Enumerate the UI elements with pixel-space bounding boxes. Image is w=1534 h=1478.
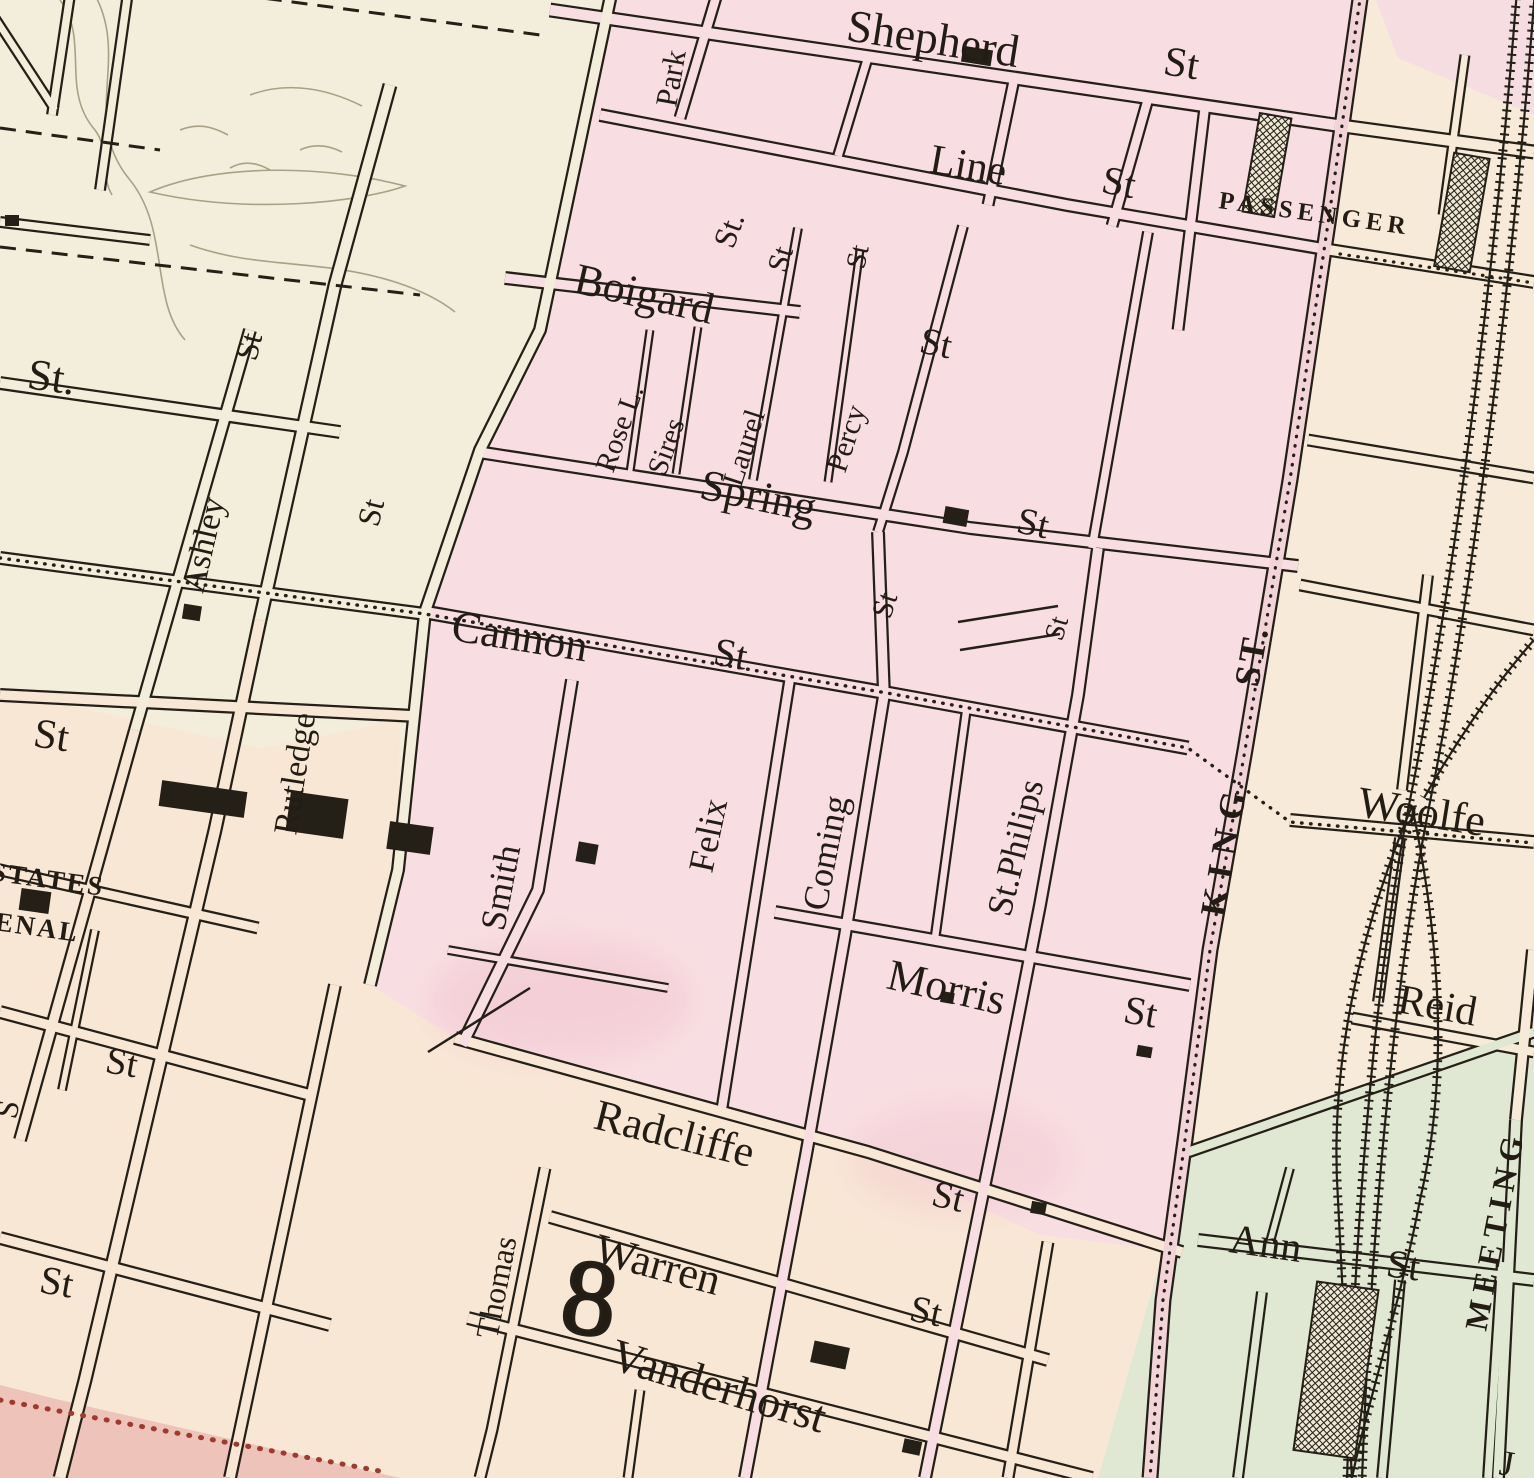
street-label-shepherd-st: St <box>1160 38 1202 89</box>
street-label-west-st: St. <box>25 349 79 404</box>
building-footprint <box>575 841 598 864</box>
charleston-street-map[interactable]: Shepherd St Park Line St PASSENGER Boiga… <box>0 0 1534 1478</box>
building-footprint <box>182 604 202 622</box>
building-footprint <box>5 215 19 226</box>
building-footprint <box>1030 1201 1047 1215</box>
street-label-ann-st: St <box>1384 1240 1423 1289</box>
street-label-st: St <box>30 710 72 761</box>
map-canvas[interactable]: Shepherd St Park Line St PASSENGER Boiga… <box>0 0 1534 1478</box>
